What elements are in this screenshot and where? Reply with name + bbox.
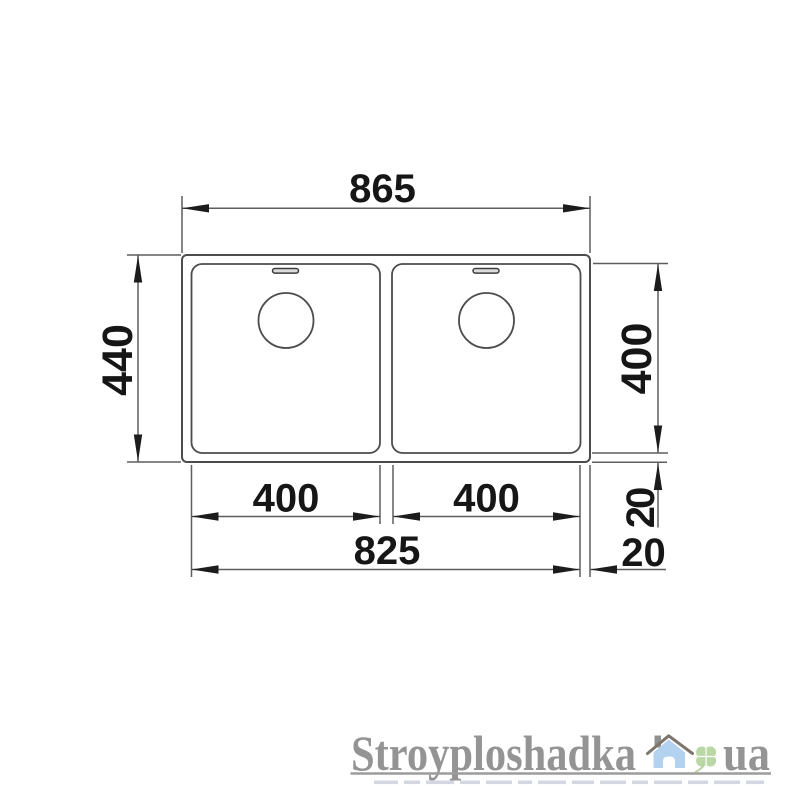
svg-text:20: 20 [621, 531, 666, 575]
svg-text:440: 440 [94, 324, 142, 396]
svg-text:400: 400 [253, 477, 320, 521]
svg-text:20: 20 [619, 488, 663, 528]
svg-text:400: 400 [613, 323, 661, 395]
svg-text:865: 865 [349, 167, 416, 211]
svg-text:400: 400 [453, 477, 520, 521]
svg-text:825: 825 [354, 529, 421, 573]
